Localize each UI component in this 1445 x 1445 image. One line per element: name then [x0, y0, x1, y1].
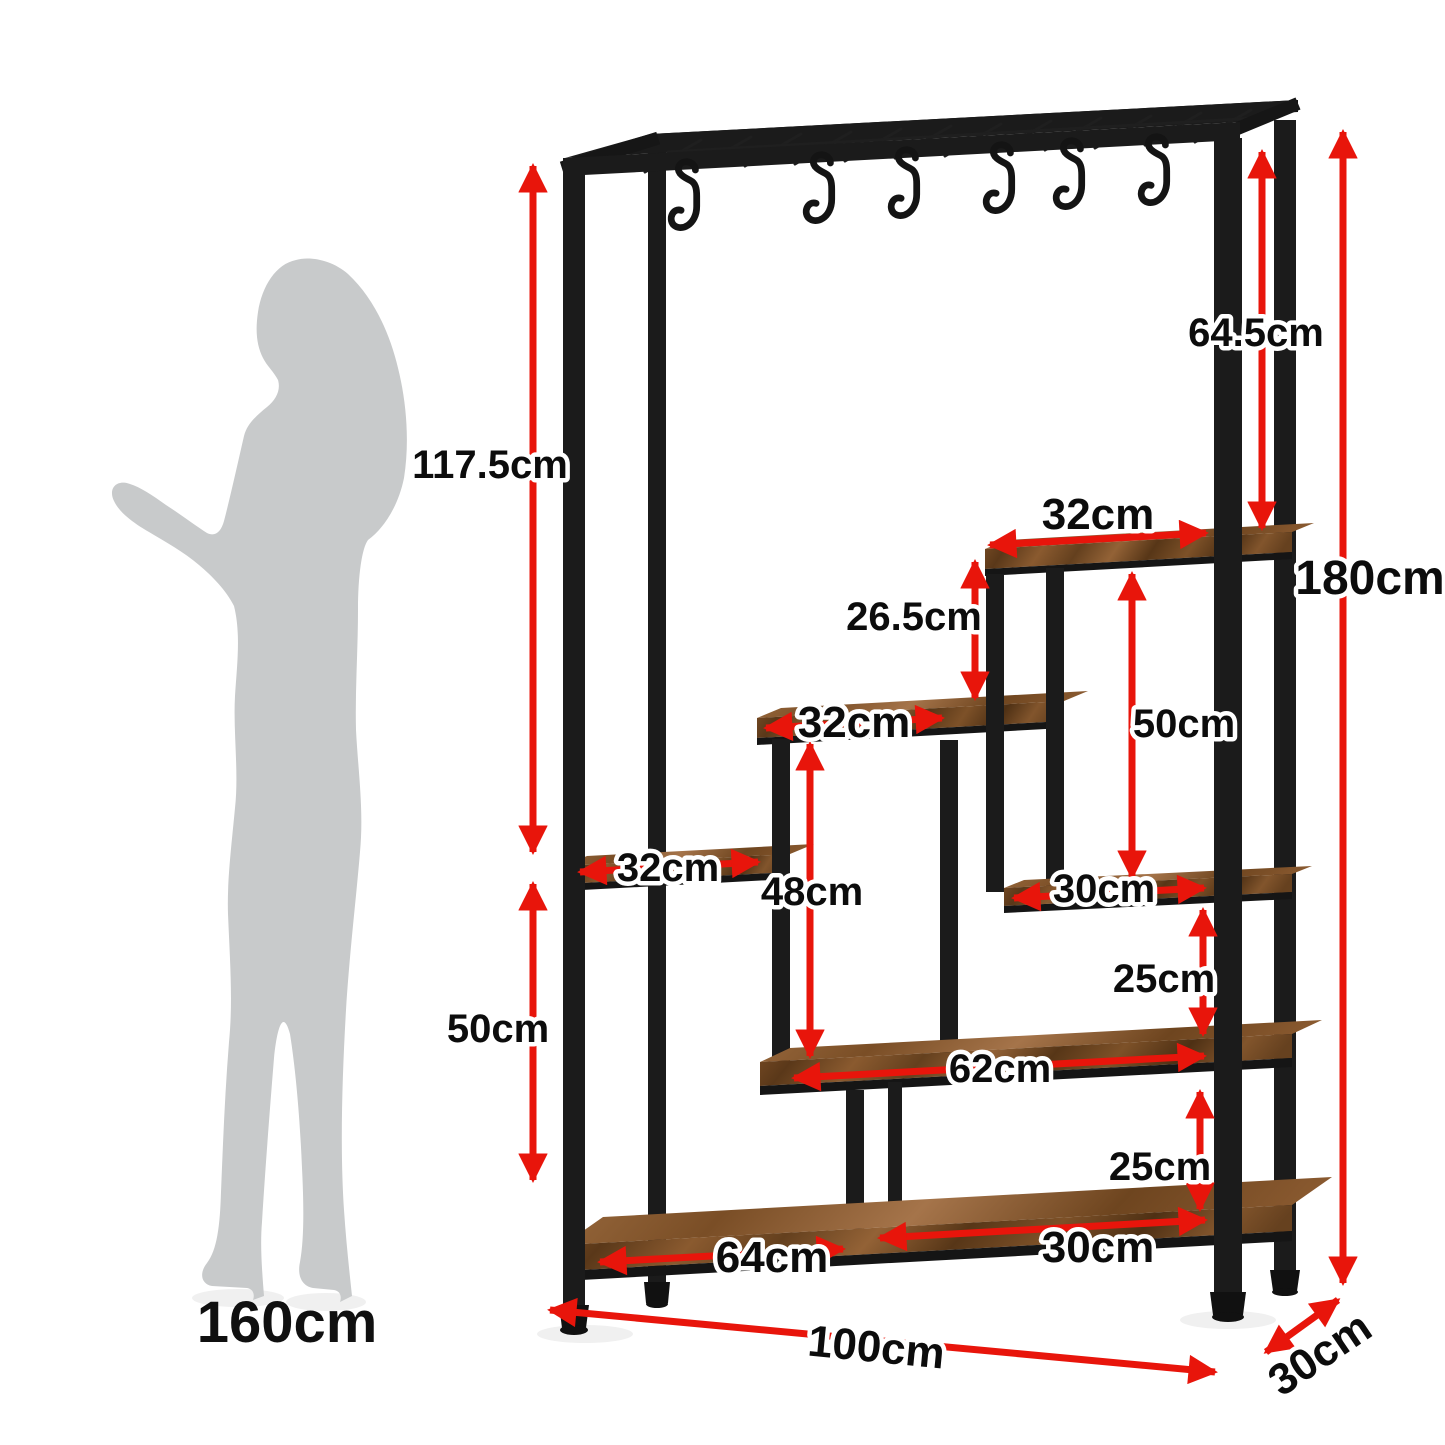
dim-label-left-shelf-width: 32cm [617, 846, 719, 890]
dim-label-total-height: 180cm [1295, 552, 1444, 605]
front-right-foot [1210, 1292, 1246, 1315]
s-hook-6 [1141, 137, 1166, 203]
scale-figure-height-label: 160cm [197, 1290, 378, 1355]
dim-label-lower-right-gap: 25cm [1109, 1145, 1211, 1189]
dim-label-top-shelf-width: 32cm [1042, 490, 1155, 539]
dim-label-bottom-right-width: 30cm [1042, 1223, 1155, 1272]
s-hook-5 [1056, 141, 1081, 207]
dim-label-upper-left-height: 117.5cm [412, 443, 568, 487]
dim-label-right-shelf-width: 30cm [1053, 867, 1155, 911]
s-hook-4 [986, 145, 1011, 211]
s-hook-3 [891, 150, 916, 216]
dim-label-hanging-clearance: 64.5cm [1188, 311, 1324, 355]
back-left-post [648, 146, 666, 1282]
back-right-foot [1270, 1270, 1300, 1291]
diagram-canvas: 117.5cm 50cm 64.5cm 180cm 32cm 26.5cm 50… [0, 0, 1445, 1445]
dim-label-total-width: 100cm [806, 1317, 947, 1379]
dim-label-mid-shelf-width: 32cm [798, 698, 911, 747]
dimension-diagram: 117.5cm 50cm 64.5cm 180cm 32cm 26.5cm 50… [0, 0, 1445, 1445]
s-hook-2 [806, 155, 831, 221]
lower-box-right-post [940, 740, 958, 1054]
dim-label-bottom-left-width: 64cm [716, 1233, 829, 1282]
back-right-post [1274, 120, 1296, 1270]
upper-box-right-post [1046, 568, 1064, 889]
dim-label-top-gap: 26.5cm [846, 595, 982, 639]
s-hook-1 [671, 162, 696, 228]
upper-box-left-post [986, 574, 1004, 892]
dim-label-long-shelf-width: 62cm [949, 1047, 1051, 1091]
back-left-foot [644, 1282, 670, 1303]
dim-label-lower-left-height: 50cm [447, 1007, 549, 1051]
front-left-post [563, 158, 585, 1305]
dim-label-right-gap: 50cm [1133, 702, 1235, 746]
dim-label-upper-right-gap: 25cm [1113, 957, 1215, 1001]
dim-label-total-depth: 30cm [1260, 1302, 1381, 1406]
dim-label-mid-gap: 48cm [761, 870, 863, 914]
person-silhouette [112, 259, 407, 1302]
